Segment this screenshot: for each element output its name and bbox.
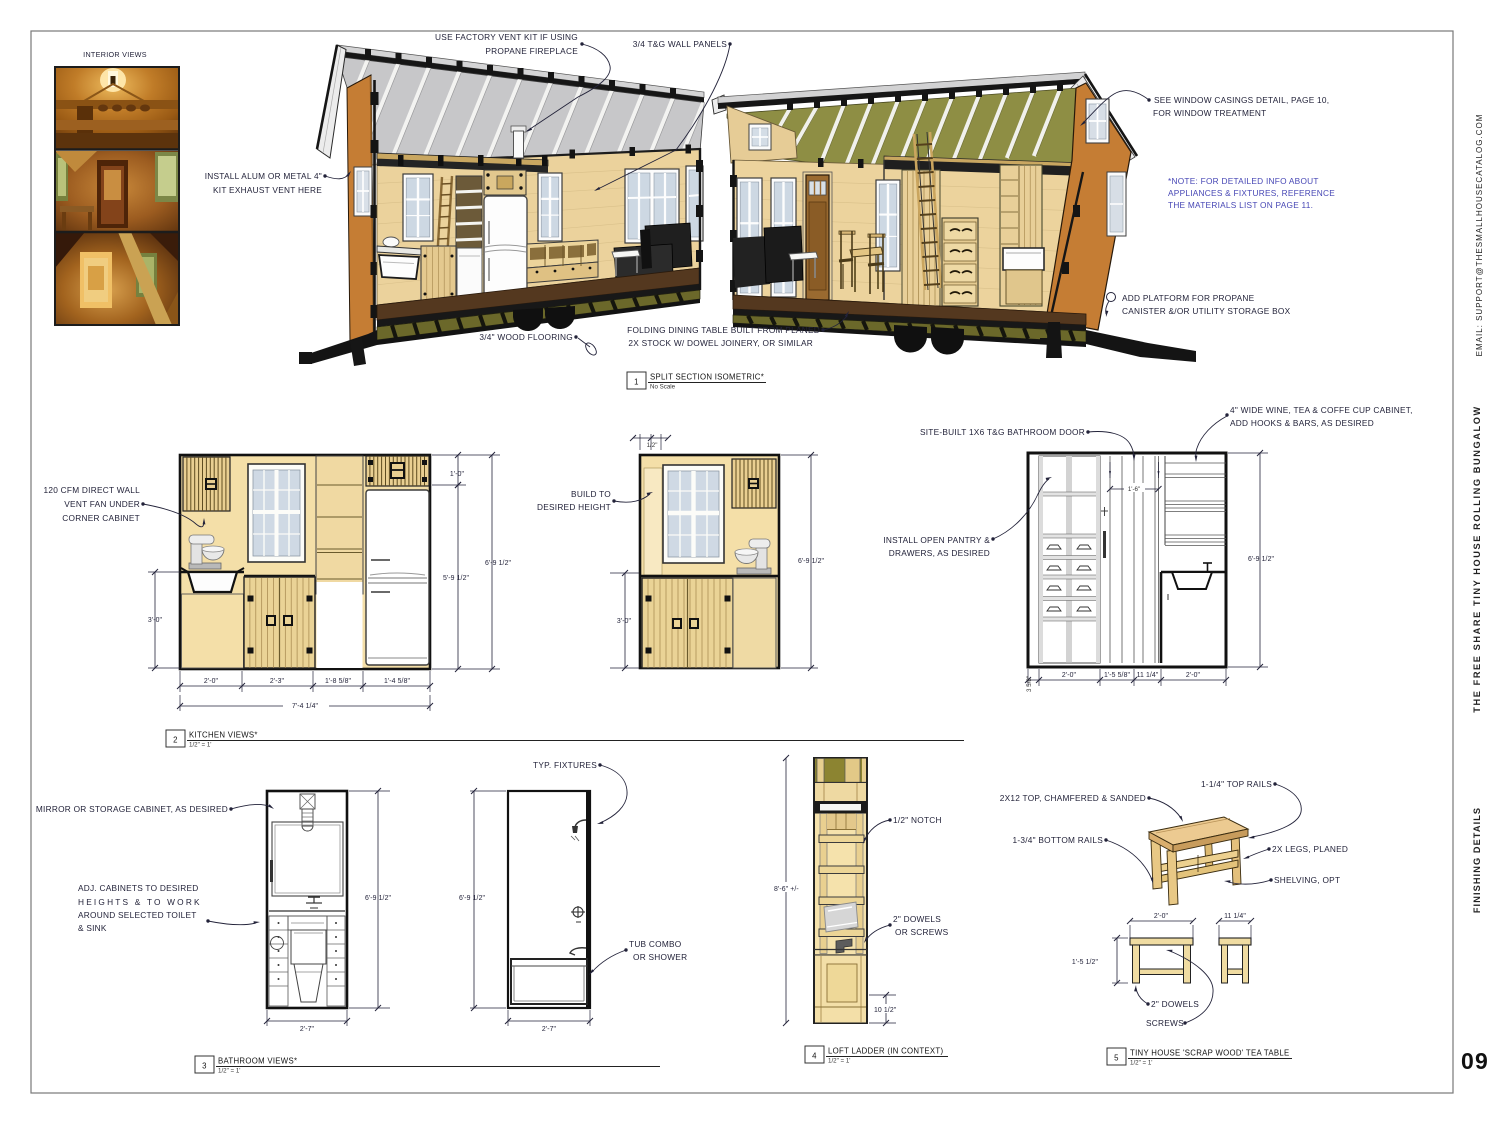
svg-text:6'-9 1/2": 6'-9 1/2" xyxy=(459,895,486,902)
svg-text:TINY HOUSE 'SCRAP WOOD' TEA TA: TINY HOUSE 'SCRAP WOOD' TEA TABLE xyxy=(1130,1049,1289,1058)
svg-text:INSTALL OPEN PANTRY &: INSTALL OPEN PANTRY & xyxy=(883,535,990,545)
svg-text:2" DOWELS: 2" DOWELS xyxy=(1151,999,1199,1009)
svg-text:2'-3": 2'-3" xyxy=(270,678,285,685)
svg-text:& SINK: & SINK xyxy=(78,923,107,933)
svg-text:2'-0": 2'-0" xyxy=(1154,913,1169,920)
svg-text:THE FREE SHARE TINY HOUSE ROLL: THE FREE SHARE TINY HOUSE ROLLING BUNGAL… xyxy=(1472,405,1482,712)
svg-text:SITE-BUILT 1X6 T&G BATHROOM DO: SITE-BUILT 1X6 T&G BATHROOM DOOR xyxy=(920,427,1085,437)
svg-text:OR SHOWER: OR SHOWER xyxy=(633,952,687,962)
svg-text:1/2": 1/2" xyxy=(647,442,658,449)
svg-text:No Scale: No Scale xyxy=(650,384,676,391)
svg-text:AROUND SELECTED TOILET: AROUND SELECTED TOILET xyxy=(78,910,197,920)
svg-text:1: 1 xyxy=(634,378,639,387)
svg-text:3'-0": 3'-0" xyxy=(148,617,163,624)
svg-text:2X LEGS, PLANED: 2X LEGS, PLANED xyxy=(1272,844,1348,854)
svg-text:3: 3 xyxy=(202,1062,207,1071)
svg-text:1/2" = 1': 1/2" = 1' xyxy=(828,1058,850,1065)
svg-text:5'-9 1/2": 5'-9 1/2" xyxy=(443,575,470,582)
svg-text:4" WIDE WINE, TEA & COFFE CUP: 4" WIDE WINE, TEA & COFFE CUP CABINET, xyxy=(1230,405,1413,415)
svg-text:11 1/4": 11 1/4" xyxy=(1224,913,1246,920)
svg-text:SCREWS: SCREWS xyxy=(1146,1018,1184,1028)
svg-text:TUB COMBO: TUB COMBO xyxy=(629,939,682,949)
svg-text:2'-0": 2'-0" xyxy=(1186,672,1201,679)
svg-text:ADJ. CABINETS TO DESIRED: ADJ. CABINETS TO DESIRED xyxy=(78,883,199,893)
svg-text:1'-4 5/8": 1'-4 5/8" xyxy=(384,678,411,685)
svg-text:3'-0": 3'-0" xyxy=(617,618,632,625)
svg-text:6'-9 1/2": 6'-9 1/2" xyxy=(365,895,392,902)
svg-text:11 1/4": 11 1/4" xyxy=(1137,672,1159,679)
svg-text:APPLIANCES & FIXTURES, REFEREN: APPLIANCES & FIXTURES, REFERENCE xyxy=(1168,188,1335,198)
svg-text:BUILD TO: BUILD TO xyxy=(571,489,611,499)
svg-text:1'-0": 1'-0" xyxy=(450,471,465,478)
svg-text:CORNER CABINET: CORNER CABINET xyxy=(62,513,140,523)
svg-text:1'-5 5/8": 1'-5 5/8" xyxy=(1104,672,1131,679)
svg-text:6'-9 1/2": 6'-9 1/2" xyxy=(1248,556,1275,563)
svg-text:6'-9 1/2": 6'-9 1/2" xyxy=(798,558,825,565)
svg-text:8'-6" +/-: 8'-6" +/- xyxy=(774,886,799,893)
svg-text:1/2" = 1': 1/2" = 1' xyxy=(1130,1060,1152,1067)
svg-text:2: 2 xyxy=(173,736,178,745)
svg-text:1-1/4" TOP RAILS: 1-1/4" TOP RAILS xyxy=(1201,779,1272,789)
svg-text:120 CFM DIRECT WALL: 120 CFM DIRECT WALL xyxy=(44,485,141,495)
svg-text:THE MATERIALS LIST ON PAGE 11.: THE MATERIALS LIST ON PAGE 11. xyxy=(1168,200,1313,210)
svg-text:FOLDING DINING TABLE BUILT FRO: FOLDING DINING TABLE BUILT FROM PLANED xyxy=(627,325,820,335)
svg-text:ADD HOOKS & BARS, AS DESIRED: ADD HOOKS & BARS, AS DESIRED xyxy=(1230,418,1374,428)
svg-text:VENT FAN UNDER: VENT FAN UNDER xyxy=(64,499,140,509)
svg-text:OR SCREWS: OR SCREWS xyxy=(895,927,949,937)
svg-text:PROPANE FIREPLACE: PROPANE FIREPLACE xyxy=(485,46,578,56)
svg-text:3/4 T&G WALL PANELS: 3/4 T&G WALL PANELS xyxy=(633,39,727,49)
svg-text:USE FACTORY VENT KIT IF USING: USE FACTORY VENT KIT IF USING xyxy=(435,32,578,42)
svg-text:2X STOCK W/ DOWEL JOINERY, OR: 2X STOCK W/ DOWEL JOINERY, OR SIMILAR xyxy=(628,338,813,348)
svg-text:EMAIL: SUPPORT@THESMALLHOUSECA: EMAIL: SUPPORT@THESMALLHOUSECATALOG.COM xyxy=(1475,114,1484,357)
svg-text:*NOTE: FOR DETAILED INFO ABOUT: *NOTE: FOR DETAILED INFO ABOUT xyxy=(1168,176,1319,186)
svg-text:2'-0": 2'-0" xyxy=(204,678,219,685)
svg-text:SEE WINDOW CASINGS DETAIL, PAG: SEE WINDOW CASINGS DETAIL, PAGE 10, xyxy=(1154,95,1329,105)
svg-text:1/2" = 1': 1/2" = 1' xyxy=(189,742,211,749)
svg-text:LOFT LADDER (IN CONTEXT): LOFT LADDER (IN CONTEXT) xyxy=(828,1047,943,1056)
svg-text:SHELVING, OPT: SHELVING, OPT xyxy=(1274,875,1340,885)
svg-text:BATHROOM VIEWS*: BATHROOM VIEWS* xyxy=(218,1057,297,1066)
svg-text:KITCHEN VIEWS*: KITCHEN VIEWS* xyxy=(189,731,258,740)
svg-text:3/4" WOOD FLOORING: 3/4" WOOD FLOORING xyxy=(479,332,573,342)
svg-text:10 1/2": 10 1/2" xyxy=(874,1007,897,1014)
svg-text:2'-0": 2'-0" xyxy=(1062,672,1077,679)
svg-text:CANISTER &/OR UTILITY STORAGE: CANISTER &/OR UTILITY STORAGE BOX xyxy=(1122,306,1291,316)
svg-text:INSTALL ALUM OR METAL 4": INSTALL ALUM OR METAL 4" xyxy=(205,171,322,181)
svg-text:1'-8 5/8": 1'-8 5/8" xyxy=(325,678,352,685)
svg-text:2" DOWELS: 2" DOWELS xyxy=(893,914,941,924)
svg-text:3 5/8": 3 5/8" xyxy=(1026,676,1033,692)
svg-text:2X12 TOP, CHAMFERED & SANDED: 2X12 TOP, CHAMFERED & SANDED xyxy=(1000,793,1146,803)
svg-text:2'-7": 2'-7" xyxy=(300,1026,315,1033)
svg-text:6'-9 1/2": 6'-9 1/2" xyxy=(485,560,512,567)
svg-text:1/2" NOTCH: 1/2" NOTCH xyxy=(893,815,942,825)
svg-text:TYP. FIXTURES: TYP. FIXTURES xyxy=(533,760,597,770)
svg-text:KIT EXHAUST VENT HERE: KIT EXHAUST VENT HERE xyxy=(213,185,322,195)
svg-text:DRAWERS, AS DESIRED: DRAWERS, AS DESIRED xyxy=(889,548,990,558)
svg-text:1'-5 1/2": 1'-5 1/2" xyxy=(1072,959,1099,966)
svg-text:DESIRED HEIGHT: DESIRED HEIGHT xyxy=(537,502,611,512)
svg-text:FOR WINDOW TREATMENT: FOR WINDOW TREATMENT xyxy=(1153,108,1266,118)
svg-text:MIRROR OR STORAGE CABINET, AS: MIRROR OR STORAGE CABINET, AS DESIRED xyxy=(36,804,228,814)
svg-text:1-3/4" BOTTOM RAILS: 1-3/4" BOTTOM RAILS xyxy=(1012,835,1103,845)
svg-text:1'-6": 1'-6" xyxy=(1128,486,1140,493)
svg-text:FINISHING DETAILS: FINISHING DETAILS xyxy=(1472,807,1482,913)
svg-text:INTERIOR VIEWS: INTERIOR VIEWS xyxy=(83,50,147,59)
svg-text:ADD PLATFORM FOR PROPANE: ADD PLATFORM FOR PROPANE xyxy=(1122,293,1255,303)
svg-text:HEIGHTS & TO WORK: HEIGHTS & TO WORK xyxy=(78,897,202,907)
svg-text:1/2" = 1': 1/2" = 1' xyxy=(218,1068,240,1075)
svg-text:5: 5 xyxy=(1114,1054,1119,1063)
svg-text:2'-7": 2'-7" xyxy=(542,1026,557,1033)
svg-text:4: 4 xyxy=(812,1052,817,1061)
svg-text:SPLIT SECTION ISOMETRIC*: SPLIT SECTION ISOMETRIC* xyxy=(650,373,764,382)
svg-text:09: 09 xyxy=(1461,1048,1489,1074)
svg-text:7'-4 1/4": 7'-4 1/4" xyxy=(292,703,319,710)
